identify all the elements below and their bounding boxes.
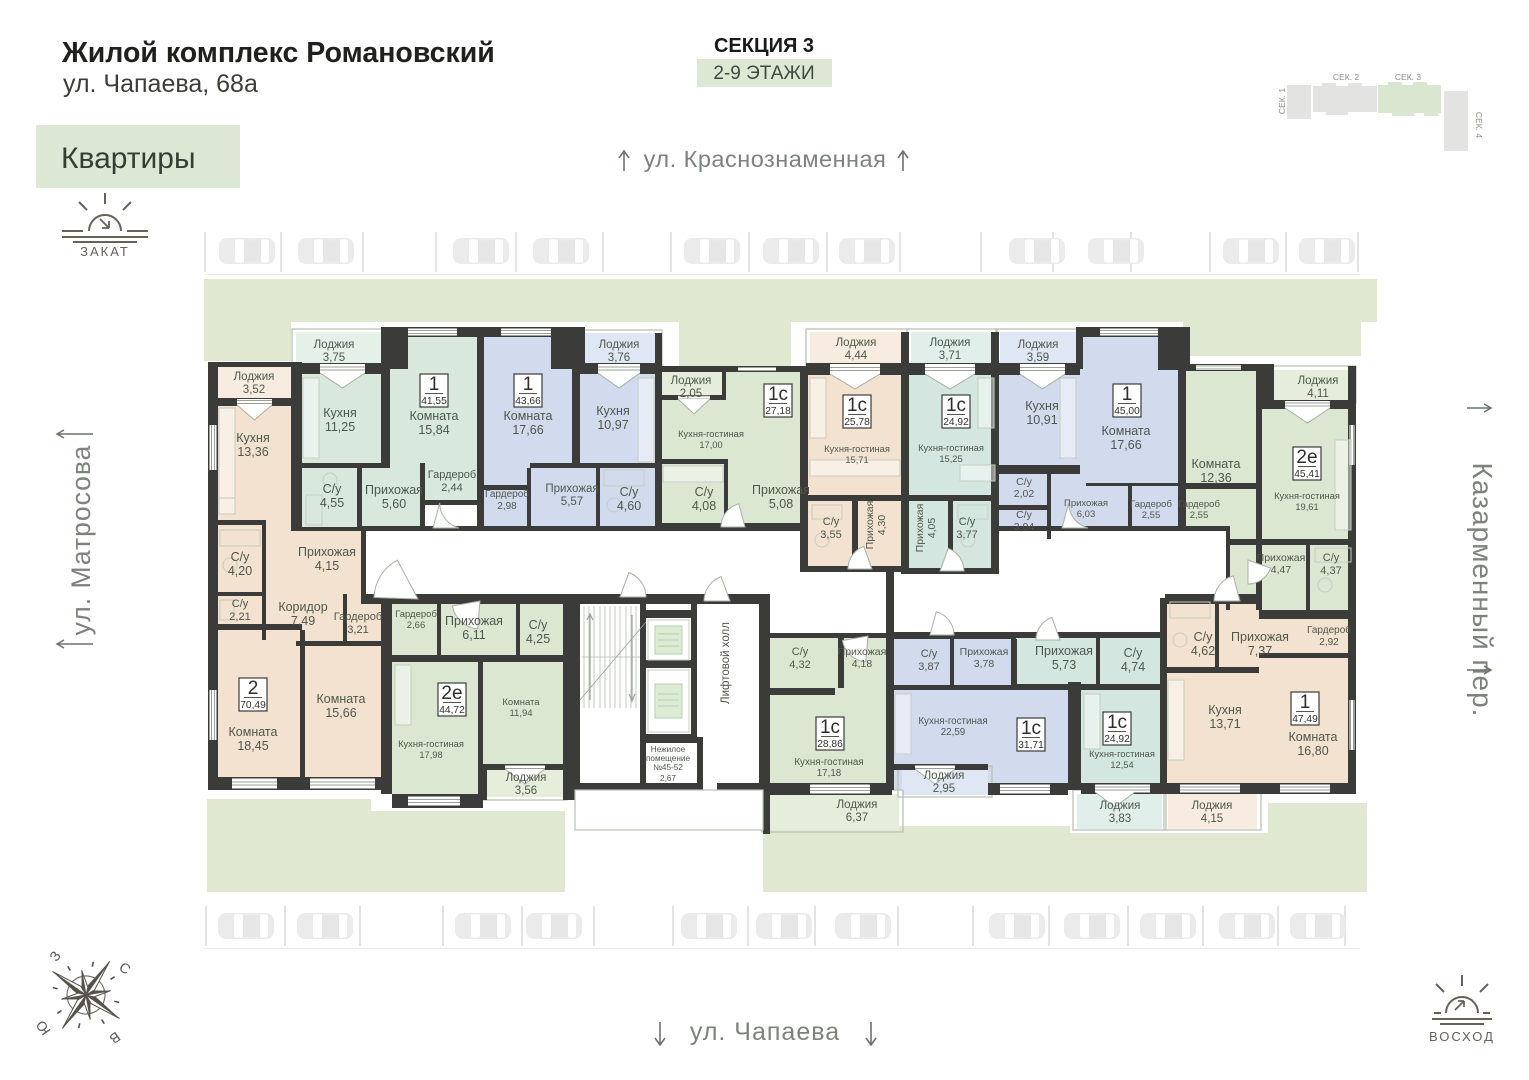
svg-text:Прихожая: Прихожая [1064, 498, 1108, 509]
svg-text:2,55: 2,55 [1142, 510, 1161, 521]
svg-text:Лоджия: Лоджия [506, 772, 547, 784]
svg-text:Лоджия: Лоджия [837, 799, 878, 811]
svg-text:10,91: 10,91 [1026, 413, 1057, 427]
svg-text:12,54: 12,54 [1110, 760, 1133, 770]
svg-text:Лоджия: Лоджия [1192, 800, 1233, 812]
svg-text:Гардероб: Гардероб [1130, 499, 1172, 510]
svg-text:ЗАКАТ: ЗАКАТ [80, 244, 130, 259]
svg-text:Казарменный пер.: Казарменный пер. [1467, 463, 1498, 718]
svg-text:4,15: 4,15 [315, 559, 339, 573]
svg-text:Нежилое: Нежилое [651, 745, 686, 754]
svg-text:Лоджия: Лоджия [234, 371, 275, 383]
svg-text:С/у: С/у [1016, 476, 1033, 488]
svg-text:Прихожая: Прихожая [1231, 630, 1289, 644]
svg-text:4,08: 4,08 [692, 499, 716, 513]
svg-text:24,92: 24,92 [943, 417, 969, 428]
svg-text:Прихожая: Прихожая [838, 646, 887, 658]
svg-text:С/у: С/у [921, 648, 938, 660]
svg-text:3,76: 3,76 [608, 352, 630, 364]
svg-text:1: 1 [429, 374, 440, 395]
svg-text:2,02: 2,02 [1014, 488, 1035, 500]
svg-text:1с: 1с [1021, 718, 1041, 739]
svg-text:4,25: 4,25 [526, 632, 550, 646]
svg-text:2,92: 2,92 [1319, 637, 1339, 648]
svg-text:С/у: С/у [823, 516, 840, 528]
svg-text:4,32: 4,32 [789, 659, 810, 671]
svg-text:Гардероб: Гардероб [395, 609, 437, 620]
svg-text:Комната: Комната [504, 409, 553, 423]
svg-text:6,37: 6,37 [846, 812, 868, 824]
svg-text:2: 2 [248, 678, 259, 699]
svg-text:13,71: 13,71 [1209, 717, 1240, 731]
svg-text:15,84: 15,84 [418, 423, 449, 437]
svg-text:Прихожая: Прихожая [445, 614, 503, 628]
svg-text:7,49: 7,49 [291, 614, 315, 628]
svg-text:19,61: 19,61 [1295, 502, 1318, 512]
svg-text:СЕК. 2: СЕК. 2 [1333, 72, 1359, 82]
svg-text:1: 1 [1300, 692, 1311, 713]
svg-text:2,98: 2,98 [497, 501, 517, 512]
svg-text:Кухня: Кухня [1025, 399, 1058, 413]
svg-text:11,94: 11,94 [509, 708, 532, 719]
svg-text:15,71: 15,71 [845, 455, 868, 465]
svg-text:Комната: Комната [1192, 457, 1241, 471]
svg-text:Лоджия: Лоджия [1298, 375, 1339, 387]
svg-text:Кухня: Кухня [1208, 703, 1241, 717]
svg-text:47,49: 47,49 [1292, 714, 1318, 725]
svg-text:4,55: 4,55 [320, 496, 344, 510]
svg-text:4,05: 4,05 [926, 518, 938, 539]
svg-text:31,71: 31,71 [1018, 740, 1044, 751]
svg-text:Лифтовой холл: Лифтовой холл [720, 622, 732, 704]
svg-text:Кухня-гостиная: Кухня-гостиная [1274, 491, 1340, 501]
svg-text:Кухня: Кухня [596, 404, 629, 418]
svg-text:ул. Чапаева, 68а: ул. Чапаева, 68а [63, 70, 258, 98]
svg-text:С/у: С/у [1124, 646, 1144, 660]
svg-text:ул. Чапаева: ул. Чапаева [690, 1018, 840, 1046]
svg-text:Кухня: Кухня [323, 406, 356, 420]
svg-text:Кухня-гостиная: Кухня-гостиная [398, 739, 464, 749]
svg-text:43,66: 43,66 [515, 396, 541, 407]
svg-text:ул. Матросова: ул. Матросова [66, 445, 96, 636]
svg-text:10,97: 10,97 [597, 418, 628, 432]
svg-text:С/у: С/у [959, 516, 976, 528]
svg-text:Прихожая: Прихожая [914, 504, 926, 553]
svg-text:2,67: 2,67 [660, 774, 676, 783]
svg-text:3,87: 3,87 [918, 661, 939, 673]
svg-text:2-9 ЭТАЖИ: 2-9 ЭТАЖИ [713, 63, 814, 84]
svg-text:1с: 1с [946, 395, 966, 416]
svg-text:4,74: 4,74 [1121, 660, 1145, 674]
svg-text:2,55: 2,55 [1190, 510, 1209, 521]
svg-text:С/у: С/у [620, 485, 640, 499]
svg-text:Лоджия: Лоджия [836, 337, 877, 349]
svg-text:17,98: 17,98 [419, 750, 442, 760]
svg-text:4,30: 4,30 [876, 515, 888, 536]
svg-text:2,44: 2,44 [441, 482, 462, 494]
svg-text:С/у: С/у [1194, 630, 1214, 644]
svg-text:28,86: 28,86 [817, 739, 843, 750]
svg-text:3,59: 3,59 [1027, 352, 1049, 364]
svg-text:Гардероб: Гардероб [428, 469, 476, 481]
svg-text:С/у: С/у [232, 598, 249, 610]
svg-text:Прихожая: Прихожая [752, 483, 810, 497]
svg-text:3,52: 3,52 [243, 384, 265, 396]
svg-text:2е: 2е [1296, 447, 1317, 468]
svg-text:Гардероб: Гардероб [1178, 499, 1220, 510]
svg-text:С/у: С/у [529, 618, 549, 632]
svg-text:Гардероб: Гардероб [485, 488, 529, 500]
svg-text:4,20: 4,20 [228, 564, 252, 578]
svg-text:СЕК. 1: СЕК. 1 [1277, 88, 1287, 114]
svg-text:Прихожая: Прихожая [298, 545, 356, 559]
svg-text:41,55: 41,55 [421, 396, 447, 407]
svg-text:3,04: 3,04 [1014, 521, 1035, 533]
svg-text:Прихожая: Прихожая [1257, 552, 1306, 564]
svg-text:Лоджия: Лоджия [671, 375, 712, 387]
svg-text:2,05: 2,05 [680, 388, 702, 400]
svg-text:Кухня-гостиная: Кухня-гостиная [794, 757, 863, 768]
svg-text:15,25: 15,25 [939, 454, 962, 464]
svg-text:1: 1 [1122, 384, 1133, 405]
svg-text:5,08: 5,08 [769, 497, 793, 511]
svg-text:25,78: 25,78 [844, 417, 870, 428]
svg-text:4,62: 4,62 [1191, 644, 1215, 658]
svg-text:17,18: 17,18 [817, 768, 842, 779]
svg-text:3,83: 3,83 [1109, 813, 1131, 825]
svg-text:СЕК. 4: СЕК. 4 [1474, 112, 1484, 138]
svg-text:18,45: 18,45 [237, 739, 268, 753]
svg-text:Кухня-гостиная: Кухня-гостиная [678, 429, 744, 439]
svg-text:Прихожая: Прихожая [545, 483, 598, 495]
svg-text:3,55: 3,55 [820, 529, 841, 541]
svg-text:ВОСХОД: ВОСХОД [1429, 1029, 1495, 1044]
svg-text:4,47: 4,47 [1271, 564, 1292, 576]
svg-text:4,44: 4,44 [845, 350, 868, 362]
svg-text:3,56: 3,56 [515, 785, 537, 797]
svg-text:Комната: Комната [502, 697, 540, 708]
svg-text:27,18: 27,18 [765, 406, 791, 417]
svg-text:1с: 1с [1107, 712, 1127, 733]
svg-text:3,78: 3,78 [974, 658, 995, 670]
svg-text:помещение: помещение [646, 754, 690, 763]
svg-text:13,36: 13,36 [237, 445, 268, 459]
svg-text:4,11: 4,11 [1307, 388, 1329, 400]
svg-text:4,18: 4,18 [852, 658, 873, 670]
svg-text:Прихожая: Прихожая [365, 483, 423, 497]
svg-text:СЕКЦИЯ 3: СЕКЦИЯ 3 [714, 35, 814, 57]
svg-text:С/у: С/у [1323, 552, 1340, 564]
svg-text:С/у: С/у [1016, 509, 1033, 521]
svg-text:4,60: 4,60 [617, 499, 641, 513]
svg-text:11,25: 11,25 [325, 420, 355, 434]
svg-text:С/у: С/у [323, 482, 343, 496]
svg-text:6,03: 6,03 [1077, 509, 1096, 520]
svg-text:Лоджия: Лоджия [599, 339, 640, 351]
svg-text:22,59: 22,59 [941, 727, 966, 738]
svg-text:45,41: 45,41 [1294, 469, 1320, 480]
svg-text:6,11: 6,11 [462, 628, 485, 642]
svg-text:Кухня-гостиная: Кухня-гостиная [824, 444, 890, 454]
svg-text:3,75: 3,75 [323, 352, 345, 364]
svg-text:4,15: 4,15 [1201, 813, 1223, 825]
svg-text:СЕК. 3: СЕК. 3 [1395, 72, 1421, 82]
svg-text:70,49: 70,49 [240, 700, 266, 711]
svg-text:Кухня: Кухня [236, 431, 269, 445]
svg-text:Комната: Комната [1102, 424, 1151, 438]
svg-text:№45-52: №45-52 [653, 763, 683, 772]
svg-text:5,57: 5,57 [561, 496, 583, 508]
svg-text:Гардероб: Гардероб [334, 611, 382, 623]
svg-text:16,80: 16,80 [1297, 744, 1328, 758]
svg-text:Кухня-гостиная: Кухня-гостиная [918, 443, 984, 453]
svg-text:Кухня-гостиная: Кухня-гостиная [918, 716, 987, 727]
svg-text:17,66: 17,66 [1110, 438, 1141, 452]
svg-text:Комната: Комната [229, 725, 278, 739]
svg-text:Прихожая: Прихожая [864, 501, 876, 550]
svg-text:Коридор: Коридор [278, 600, 327, 614]
svg-text:Лоджия: Лоджия [1100, 800, 1141, 812]
svg-text:Комната: Комната [1289, 730, 1338, 744]
svg-text:12,36: 12,36 [1200, 471, 1231, 485]
svg-text:Прихожая: Прихожая [1035, 644, 1093, 658]
svg-text:1с: 1с [847, 395, 867, 416]
svg-text:17,66: 17,66 [512, 423, 543, 437]
svg-text:2,95: 2,95 [933, 783, 955, 795]
svg-text:5,60: 5,60 [382, 497, 406, 511]
svg-text:3,71: 3,71 [939, 350, 961, 362]
svg-text:4,37: 4,37 [1320, 565, 1341, 577]
svg-text:С/у: С/у [231, 550, 251, 564]
svg-text:Гардероб: Гардероб [1307, 624, 1351, 636]
svg-text:Лоджия: Лоджия [924, 770, 965, 782]
svg-text:Квартиры: Квартиры [61, 142, 196, 175]
svg-text:Лоджия: Лоджия [930, 337, 971, 349]
svg-text:Лоджия: Лоджия [314, 339, 355, 351]
svg-text:2,66: 2,66 [407, 620, 426, 631]
svg-text:Жилой комплекс Романовский: Жилой комплекс Романовский [61, 37, 495, 69]
svg-text:Комната: Комната [410, 409, 459, 423]
svg-text:45,00: 45,00 [1114, 406, 1140, 417]
svg-text:1: 1 [523, 374, 534, 395]
svg-text:Кухня-гостиная: Кухня-гостиная [1089, 749, 1155, 759]
svg-text:7,37: 7,37 [1248, 644, 1272, 658]
svg-text:2е: 2е [441, 683, 462, 704]
svg-text:3,77: 3,77 [956, 529, 977, 541]
svg-text:24,92: 24,92 [1104, 734, 1130, 745]
svg-text:1с: 1с [768, 384, 788, 405]
svg-text:ул. Краснознаменная: ул. Краснознаменная [644, 146, 887, 172]
svg-text:15,66: 15,66 [325, 706, 356, 720]
svg-text:2,21: 2,21 [229, 611, 250, 623]
svg-text:3,21: 3,21 [347, 624, 368, 636]
svg-text:Прихожая: Прихожая [960, 646, 1009, 658]
svg-text:С/у: С/у [695, 485, 715, 499]
svg-text:Комната: Комната [317, 692, 366, 706]
svg-text:44,72: 44,72 [439, 705, 465, 716]
svg-text:5,73: 5,73 [1052, 658, 1076, 672]
svg-text:Лоджия: Лоджия [1018, 339, 1059, 351]
svg-text:С/у: С/у [792, 646, 809, 658]
svg-text:1с: 1с [820, 717, 840, 738]
svg-text:17,00: 17,00 [699, 440, 722, 450]
